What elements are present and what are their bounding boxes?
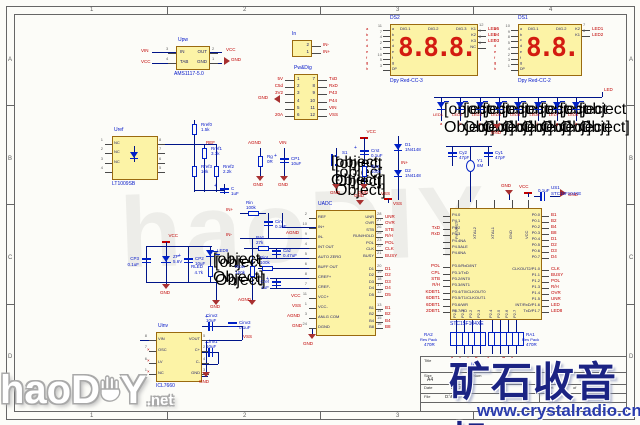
zone-row-label: C bbox=[8, 255, 12, 261]
pin bbox=[511, 41, 518, 42]
pin bbox=[285, 80, 294, 81]
pin bbox=[542, 228, 549, 229]
cap-polarity: + bbox=[178, 254, 181, 259]
net-label: D1 bbox=[385, 267, 391, 272]
pin bbox=[478, 48, 486, 49]
wire bbox=[188, 246, 189, 282]
net-label: VSS bbox=[292, 304, 301, 309]
capacitor bbox=[184, 262, 193, 264]
wire bbox=[508, 320, 509, 332]
frame-tick bbox=[6, 204, 14, 205]
pin-number: 7 bbox=[372, 30, 382, 34]
capacitor bbox=[448, 156, 457, 158]
pin bbox=[511, 64, 518, 65]
pin bbox=[202, 363, 209, 364]
component-ref: LED9 bbox=[217, 249, 228, 254]
component-ref: RLED bbox=[173, 265, 203, 270]
led-label: LED4 bbox=[491, 113, 501, 117]
net-label: D4 bbox=[385, 286, 391, 291]
resistor-pack bbox=[450, 332, 486, 346]
pin-name: NC bbox=[114, 150, 120, 154]
pin-number: 3 bbox=[500, 58, 510, 62]
connector-ref: Pw&Dig bbox=[294, 66, 312, 71]
chip-ref: Upw bbox=[178, 38, 188, 43]
net-label: AGND bbox=[238, 298, 251, 303]
frame-tick bbox=[473, 6, 474, 14]
pin-name: C- bbox=[158, 360, 200, 364]
frame-tick bbox=[626, 204, 634, 205]
pin bbox=[312, 53, 321, 54]
pin-name: P3.2/INT0 bbox=[452, 277, 470, 281]
pin-name: P0.6 bbox=[498, 249, 540, 253]
net-label: P44 bbox=[329, 99, 337, 104]
pin-number: 2 bbox=[297, 84, 300, 89]
led-label: LED8 bbox=[568, 113, 578, 117]
pin bbox=[383, 53, 390, 54]
display-ref: DS1 bbox=[518, 16, 528, 21]
resistor-pack bbox=[488, 332, 524, 346]
pin-number: 9 bbox=[479, 29, 481, 33]
net-label: CLK bbox=[385, 247, 394, 252]
pin bbox=[443, 274, 450, 275]
net-label: US1 bbox=[551, 186, 560, 191]
pin bbox=[309, 228, 316, 229]
zone-col-label: 4 bbox=[549, 7, 552, 13]
segment-pin-name: a bbox=[520, 28, 522, 32]
net-label: GND bbox=[160, 291, 170, 296]
pin-number: 6 bbox=[297, 262, 307, 266]
capacitor bbox=[272, 285, 281, 287]
net-label: b bbox=[459, 122, 461, 126]
pin bbox=[285, 109, 294, 110]
pin bbox=[542, 258, 549, 259]
net-label: b bbox=[494, 33, 496, 37]
net-label: f bbox=[494, 56, 495, 60]
frame-tick bbox=[6, 304, 14, 305]
pin bbox=[309, 318, 316, 319]
pin-number: 8 bbox=[500, 35, 510, 39]
frame-tick bbox=[6, 105, 14, 106]
pin bbox=[318, 87, 327, 88]
pin-number: 2 bbox=[212, 47, 214, 51]
net-label: STB bbox=[385, 228, 394, 233]
net-label: GND bbox=[210, 305, 220, 310]
pin-number: 2 bbox=[372, 41, 382, 45]
wire bbox=[470, 172, 471, 202]
frame-tick bbox=[626, 105, 634, 106]
net-label: OVR bbox=[551, 291, 561, 296]
pin-number: 4 bbox=[203, 357, 205, 361]
net-label: R/H bbox=[551, 285, 559, 290]
capacitor bbox=[142, 262, 151, 264]
resistor bbox=[202, 148, 207, 159]
cap-polarity: + bbox=[274, 154, 277, 159]
net-label: 2DBT1 bbox=[413, 309, 440, 314]
pin-name: OVR bbox=[332, 221, 374, 225]
pin-name: VCC+ bbox=[318, 295, 329, 299]
net-label: BUSY bbox=[385, 254, 397, 259]
pin-name: CREF- bbox=[318, 285, 330, 289]
zone-row-label: C bbox=[629, 255, 633, 261]
pin bbox=[309, 248, 316, 249]
component-value: 0.1uF bbox=[538, 189, 550, 194]
wire bbox=[146, 246, 212, 247]
pin-name: P0.4 bbox=[498, 237, 540, 241]
pin bbox=[158, 153, 165, 154]
pin-name: POL bbox=[332, 241, 374, 245]
zone-col-label: 3 bbox=[396, 413, 399, 419]
pin-name: P2.4 bbox=[489, 292, 495, 318]
pin-number: 11 bbox=[372, 24, 382, 28]
pin bbox=[105, 163, 112, 164]
pin-name: NC bbox=[114, 160, 120, 164]
net-label: f bbox=[366, 56, 367, 60]
pin-number: 26 bbox=[377, 225, 381, 229]
pin-number: 12 bbox=[305, 113, 315, 118]
pin-number: 1 bbox=[93, 138, 103, 142]
pin-number: 4 bbox=[93, 166, 103, 170]
pin-number: 10 bbox=[372, 53, 382, 57]
pin-name: P2.3 bbox=[477, 292, 483, 318]
component-value: 470R bbox=[424, 343, 435, 348]
capacitor bbox=[360, 154, 369, 156]
zone-col-label: 1 bbox=[90, 7, 93, 13]
pin-number: 8 bbox=[583, 29, 585, 33]
pin bbox=[443, 299, 450, 300]
component-value: 3.3k bbox=[211, 152, 220, 157]
pin-name: P4.6NA bbox=[452, 251, 466, 255]
component-value: 1.5k bbox=[201, 128, 210, 133]
segment-pin-name: f bbox=[520, 57, 521, 61]
pin bbox=[476, 200, 477, 208]
pin-number: 5 bbox=[297, 252, 307, 256]
pin bbox=[309, 298, 316, 299]
date-label: Date bbox=[424, 386, 432, 390]
pin bbox=[149, 351, 156, 352]
pin-number: 12 bbox=[377, 290, 381, 294]
pin bbox=[542, 222, 549, 223]
pin-name: P1.3 bbox=[498, 285, 540, 289]
pin bbox=[383, 36, 390, 37]
net-label: TxD bbox=[329, 77, 337, 82]
pin bbox=[443, 242, 450, 243]
net-label: 20A bbox=[255, 113, 283, 118]
capacitor bbox=[220, 188, 229, 190]
net-label: STC15F104XE bbox=[551, 192, 581, 197]
pin bbox=[528, 200, 529, 208]
led-icon: [object Object] bbox=[444, 101, 449, 102]
pin bbox=[542, 240, 549, 241]
gnd-icon bbox=[493, 124, 501, 129]
frame-tick bbox=[626, 304, 634, 305]
pin-name: IN+ bbox=[318, 225, 324, 229]
pin bbox=[542, 288, 549, 289]
pin-name: B1 bbox=[332, 306, 374, 310]
pin bbox=[383, 59, 390, 60]
net-label: LED1 bbox=[592, 27, 603, 32]
pin bbox=[383, 64, 390, 65]
wire bbox=[146, 246, 147, 282]
pin-name: IN- bbox=[318, 235, 323, 239]
pin bbox=[376, 328, 383, 329]
pin-number: 1 bbox=[372, 47, 382, 51]
pin-number: 4 bbox=[500, 47, 510, 51]
pin bbox=[376, 296, 383, 297]
net-label: RxD bbox=[413, 232, 440, 237]
frame-tick bbox=[167, 411, 168, 419]
net-label: B1 bbox=[385, 306, 391, 311]
pin-name: P0.5 bbox=[498, 243, 540, 247]
net-label: GND bbox=[501, 184, 511, 189]
pin-name: P1.1 bbox=[498, 273, 540, 277]
pin bbox=[149, 363, 156, 364]
net-label: 6DBT1 bbox=[413, 303, 440, 308]
pin-name: P3.1/TxD bbox=[452, 271, 469, 275]
component-ref: Rlow bbox=[215, 265, 245, 270]
wire bbox=[166, 242, 167, 246]
pin bbox=[443, 312, 450, 313]
net-label: LED bbox=[604, 88, 613, 93]
net-label: 6DBT1 bbox=[413, 296, 440, 301]
net-label: VSS bbox=[381, 192, 390, 197]
pin bbox=[210, 53, 218, 54]
wire bbox=[218, 352, 219, 364]
hand-icon bbox=[98, 373, 122, 408]
net-label: c bbox=[494, 38, 496, 42]
led-icon: [object Object] bbox=[502, 101, 507, 102]
gnd-icon bbox=[274, 95, 280, 103]
gnd-icon bbox=[280, 176, 288, 181]
pin-name: DGND bbox=[318, 325, 330, 329]
crystal-icon bbox=[466, 160, 475, 172]
pin-name: VCC- bbox=[318, 305, 328, 309]
pin-name: RUN/HOLD bbox=[332, 234, 374, 238]
net-label: LED8 bbox=[551, 309, 562, 314]
segment-pin-name: DP bbox=[520, 68, 525, 72]
pin-name: P2.6 bbox=[505, 292, 511, 318]
net-label: B2 bbox=[551, 219, 557, 224]
capacitor bbox=[448, 152, 457, 154]
net-label: VIN bbox=[141, 49, 149, 54]
zone-row-label: D bbox=[8, 354, 12, 360]
net-label: D4 bbox=[551, 255, 557, 260]
pin-number: 4 bbox=[372, 35, 382, 39]
pin bbox=[511, 53, 518, 54]
led-label: LED5 bbox=[510, 113, 520, 117]
led-label: LED1 bbox=[433, 113, 443, 117]
pin-number: 17 bbox=[377, 283, 381, 287]
connector-ref: In bbox=[292, 32, 296, 37]
zone-row-label: B bbox=[629, 156, 633, 162]
pin-number: 7 bbox=[297, 282, 307, 286]
resistor bbox=[248, 211, 259, 216]
pin-name: BUSY bbox=[332, 254, 374, 258]
pin-number: 9 bbox=[500, 30, 510, 34]
pin bbox=[542, 294, 549, 295]
gnd-icon bbox=[360, 184, 368, 189]
resistor bbox=[208, 266, 213, 277]
pin-number: 19 bbox=[377, 270, 381, 274]
segment-pin-name: a bbox=[392, 28, 394, 32]
net-label: AGND bbox=[248, 141, 261, 146]
component-value: 27k bbox=[256, 241, 263, 246]
pin-name: STB bbox=[332, 228, 374, 232]
component-value: 0.47uF bbox=[283, 254, 297, 259]
pin-name: VOUT bbox=[158, 337, 200, 341]
led-icon: [object Object] bbox=[463, 101, 468, 102]
pin bbox=[309, 218, 316, 219]
pin bbox=[158, 144, 165, 145]
net-label: GND bbox=[199, 380, 209, 385]
net-label: D2 bbox=[551, 243, 557, 248]
pin bbox=[443, 267, 450, 268]
cap-polarity: + bbox=[214, 184, 217, 189]
net-label: B8 bbox=[551, 231, 557, 236]
chip-ref: Uinv bbox=[158, 324, 168, 329]
wire bbox=[166, 246, 167, 284]
pin bbox=[285, 94, 294, 95]
wire bbox=[470, 146, 471, 160]
capacitor bbox=[142, 258, 151, 260]
zener-icon bbox=[130, 158, 138, 159]
net-label: VIN bbox=[279, 141, 287, 146]
net-label: e bbox=[366, 50, 368, 54]
pin bbox=[542, 276, 549, 277]
net-label: g bbox=[366, 61, 368, 65]
pin-name: OUT bbox=[190, 50, 207, 55]
wire bbox=[516, 320, 517, 332]
component-value: 100k bbox=[215, 271, 245, 276]
pin bbox=[542, 234, 549, 235]
component-value: 1N4148 bbox=[405, 174, 421, 179]
pin bbox=[511, 30, 518, 31]
pin-name: CREF+ bbox=[318, 275, 331, 279]
pin-number: 1 bbox=[299, 50, 309, 55]
pin-name: TAB bbox=[180, 60, 188, 65]
component-ref: Cref bbox=[239, 280, 269, 285]
pin-number: 8 bbox=[479, 35, 481, 39]
pin-number: 2 bbox=[93, 147, 103, 151]
pin bbox=[105, 153, 112, 154]
pin bbox=[443, 222, 450, 223]
frame-tick bbox=[320, 411, 321, 419]
net-label: a bbox=[494, 27, 496, 31]
net-label: P43 bbox=[329, 91, 337, 96]
pin-name: D3 bbox=[332, 280, 374, 284]
pin bbox=[511, 36, 518, 37]
net-label: POL bbox=[413, 264, 440, 269]
pin-number: 20 bbox=[377, 264, 381, 268]
resistor bbox=[258, 246, 269, 251]
net-label: S1 bbox=[342, 151, 348, 156]
gnd-icon bbox=[505, 190, 513, 195]
pin-number: 25 bbox=[377, 231, 381, 235]
display-ref: DS2 bbox=[390, 16, 400, 21]
net-label: AGND bbox=[287, 314, 300, 319]
pin-name: P0.1 bbox=[498, 219, 540, 223]
net-label: × bbox=[147, 348, 150, 353]
wire bbox=[202, 364, 218, 365]
pin bbox=[542, 306, 549, 307]
capacitor bbox=[272, 281, 281, 283]
net-label: CLK bbox=[551, 267, 560, 272]
net-label: VSS bbox=[329, 113, 338, 118]
pin bbox=[309, 308, 316, 309]
segment-pin-name: g bbox=[520, 62, 522, 66]
pin bbox=[542, 216, 549, 217]
net-label: UNR bbox=[551, 297, 561, 302]
component-value: 6M bbox=[477, 164, 483, 169]
net-label: GND bbox=[258, 96, 268, 101]
wire bbox=[388, 199, 389, 203]
pin-name: GND bbox=[509, 211, 515, 239]
pin-name: NC bbox=[114, 141, 120, 145]
pin-number: 16 bbox=[377, 322, 381, 326]
pin-name: P3.3/INT1 bbox=[452, 283, 470, 287]
pin-name: NC bbox=[464, 45, 476, 49]
led-icon: [object Object] bbox=[541, 101, 546, 102]
net-label: × bbox=[147, 359, 150, 364]
pin bbox=[511, 59, 518, 60]
size-value: A4 bbox=[427, 378, 433, 383]
pin-number: 18 bbox=[377, 277, 381, 281]
pin-number: 7 bbox=[137, 345, 147, 349]
net-label: h bbox=[575, 122, 577, 126]
watermark-site-url: www.crystalradio.cn bbox=[477, 401, 640, 421]
net-label: VCC bbox=[519, 185, 529, 190]
component-value: 1uF bbox=[231, 192, 239, 197]
pin-name: P2.5 bbox=[497, 292, 503, 318]
pin-name: GND bbox=[190, 60, 207, 65]
capacitor bbox=[264, 221, 273, 223]
pin bbox=[542, 300, 549, 301]
capacitor bbox=[272, 250, 281, 252]
capacitor bbox=[484, 156, 493, 158]
wire bbox=[528, 193, 529, 197]
net-label: VCC bbox=[141, 60, 151, 65]
pin-name: P2.1 bbox=[461, 292, 467, 318]
pin bbox=[512, 200, 513, 208]
pin-number: 10 bbox=[297, 222, 307, 226]
capacitor bbox=[484, 152, 493, 154]
pin-number: 2 bbox=[500, 53, 510, 57]
component-value: 1N4148 bbox=[405, 148, 421, 153]
pin bbox=[383, 30, 390, 31]
pin bbox=[494, 200, 495, 208]
net-label: 5V bbox=[255, 77, 283, 82]
pin-name: CLK bbox=[332, 247, 374, 251]
pin-name: P4.5ALE bbox=[452, 245, 468, 249]
pin-name: D2 bbox=[332, 273, 374, 277]
pin-number: 6 bbox=[479, 41, 481, 45]
net-label: b bbox=[366, 33, 368, 37]
pin-number: 22 bbox=[377, 244, 381, 248]
pin-number: 8 bbox=[159, 138, 161, 142]
pin-name: P2.2 bbox=[469, 292, 475, 318]
segment-pin-name: c bbox=[520, 39, 522, 43]
pin-name: P4.7/RST bbox=[455, 211, 461, 239]
pin bbox=[542, 246, 549, 247]
wire bbox=[602, 92, 603, 97]
pin bbox=[582, 36, 590, 37]
component-value: 1uF bbox=[239, 286, 269, 291]
chip-part: LT1009SB bbox=[112, 182, 135, 187]
pin-number: 3 bbox=[166, 47, 168, 51]
pin bbox=[309, 258, 316, 259]
net-label: c bbox=[366, 38, 368, 42]
seven-segment-digits: 8.8. bbox=[526, 35, 577, 61]
gnd-icon bbox=[256, 176, 264, 181]
